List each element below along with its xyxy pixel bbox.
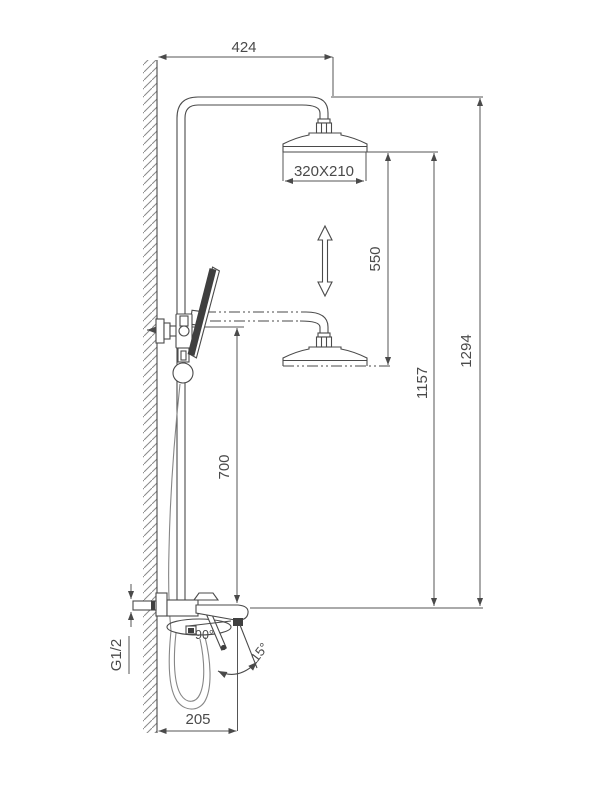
inlet-thread-label: G1/2 — [108, 639, 125, 672]
wall-hatching — [143, 60, 157, 733]
bracket-to-mixer-label: 700 — [216, 454, 233, 479]
spout — [196, 605, 248, 620]
height-adjust-arrow-icon — [318, 226, 332, 296]
head-size-label: 320X210 — [294, 163, 354, 180]
extension-lines — [191, 57, 483, 731]
dim-total-height: 1294 — [458, 98, 480, 606]
mixer-wall-flange — [156, 593, 167, 616]
head-connector-collar — [318, 119, 330, 123]
head-height-label: 1157 — [414, 367, 431, 399]
dim-head-travel: 550 — [367, 153, 388, 365]
head-connector-nut — [317, 123, 332, 133]
cartridge-dome — [194, 593, 218, 600]
head-size-dimension: 320X210 — [283, 152, 366, 181]
handle-rotation-label: 90° — [195, 628, 214, 642]
dim-inlet-thread: G1/2 — [108, 584, 131, 674]
dim-bracket-to-mixer: 700 — [216, 328, 237, 603]
wall-section — [143, 60, 157, 733]
dim-spout-reach: 205 — [159, 711, 237, 731]
mixer-body — [167, 600, 198, 616]
dim-head-height: 1157 — [414, 153, 434, 606]
dim-top-offset: 424 — [159, 39, 333, 57]
spout-reach-label: 205 — [185, 711, 210, 728]
overhead-shower-head — [283, 133, 367, 152]
annotation-handle-rotation: 90° — [195, 628, 214, 642]
head-travel-label: 550 — [367, 246, 384, 271]
top-offset-label: 424 — [231, 39, 256, 56]
annotation-spout-tilt: 15° — [218, 625, 271, 674]
technical-drawing-shower-system: 320X210 424 550 1157 1294 — [0, 0, 608, 791]
lowered-shower-head — [283, 347, 367, 366]
lowered-head-phantom — [205, 312, 391, 366]
hand-shower-head — [173, 363, 193, 383]
shower-hose — [169, 384, 210, 709]
spout-tilt-label: 15° — [247, 640, 271, 665]
total-height-label: 1294 — [458, 334, 475, 367]
spout-aerator — [233, 618, 243, 626]
